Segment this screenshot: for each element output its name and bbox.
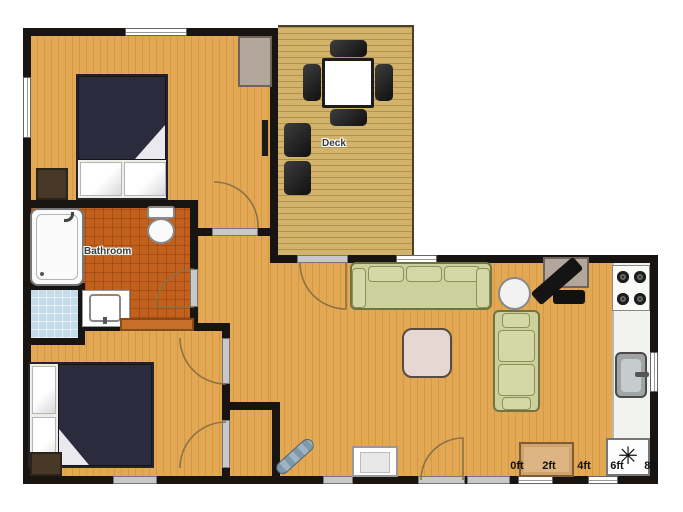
deck-label: Deck xyxy=(322,138,346,149)
dresser xyxy=(238,36,272,87)
scale-label-8ft: 8ft xyxy=(638,460,664,472)
nightstand xyxy=(30,452,62,476)
dresser xyxy=(120,318,194,331)
closet-door-arc xyxy=(180,422,226,468)
toilet-bowl xyxy=(147,218,175,244)
bed-duvet xyxy=(58,364,152,466)
burner-icon xyxy=(617,293,629,305)
burner-icon xyxy=(634,271,646,283)
scale-label-2ft: 2ft xyxy=(536,460,562,472)
burner-icon xyxy=(634,293,646,305)
bedroom2-door-arc xyxy=(180,338,226,384)
bed-duvet xyxy=(78,76,166,160)
coffee-table xyxy=(402,328,452,378)
pillow xyxy=(32,366,56,414)
bedroom1-door-arc xyxy=(214,182,258,228)
burner-icon xyxy=(617,271,629,283)
faucet-icon xyxy=(635,372,649,377)
loveseat xyxy=(493,310,540,412)
round-side-table xyxy=(498,277,531,310)
nightstand xyxy=(36,168,68,200)
bathroom-label: Bathroom xyxy=(84,246,131,257)
pillow xyxy=(124,162,166,196)
scale-label-0ft: 0ft xyxy=(504,460,530,472)
tv-stand xyxy=(553,290,585,304)
floor-plan: ✳ Deck Bathroom 0ft 2ft 4ft 6ft 8ft xyxy=(0,0,683,512)
cabinet xyxy=(352,446,398,477)
wall-fixture xyxy=(262,120,268,156)
pillow xyxy=(80,162,122,196)
scale-label-4ft: 4ft xyxy=(571,460,597,472)
bathtub xyxy=(30,208,84,286)
sofa xyxy=(350,262,492,310)
stove xyxy=(612,265,650,311)
scale-label-6ft: 6ft xyxy=(604,460,630,472)
kitchen-sink xyxy=(615,352,647,398)
entry-door-arc xyxy=(421,438,463,480)
bathroom-door-arc xyxy=(156,269,194,307)
deck-door-arc xyxy=(300,263,346,309)
